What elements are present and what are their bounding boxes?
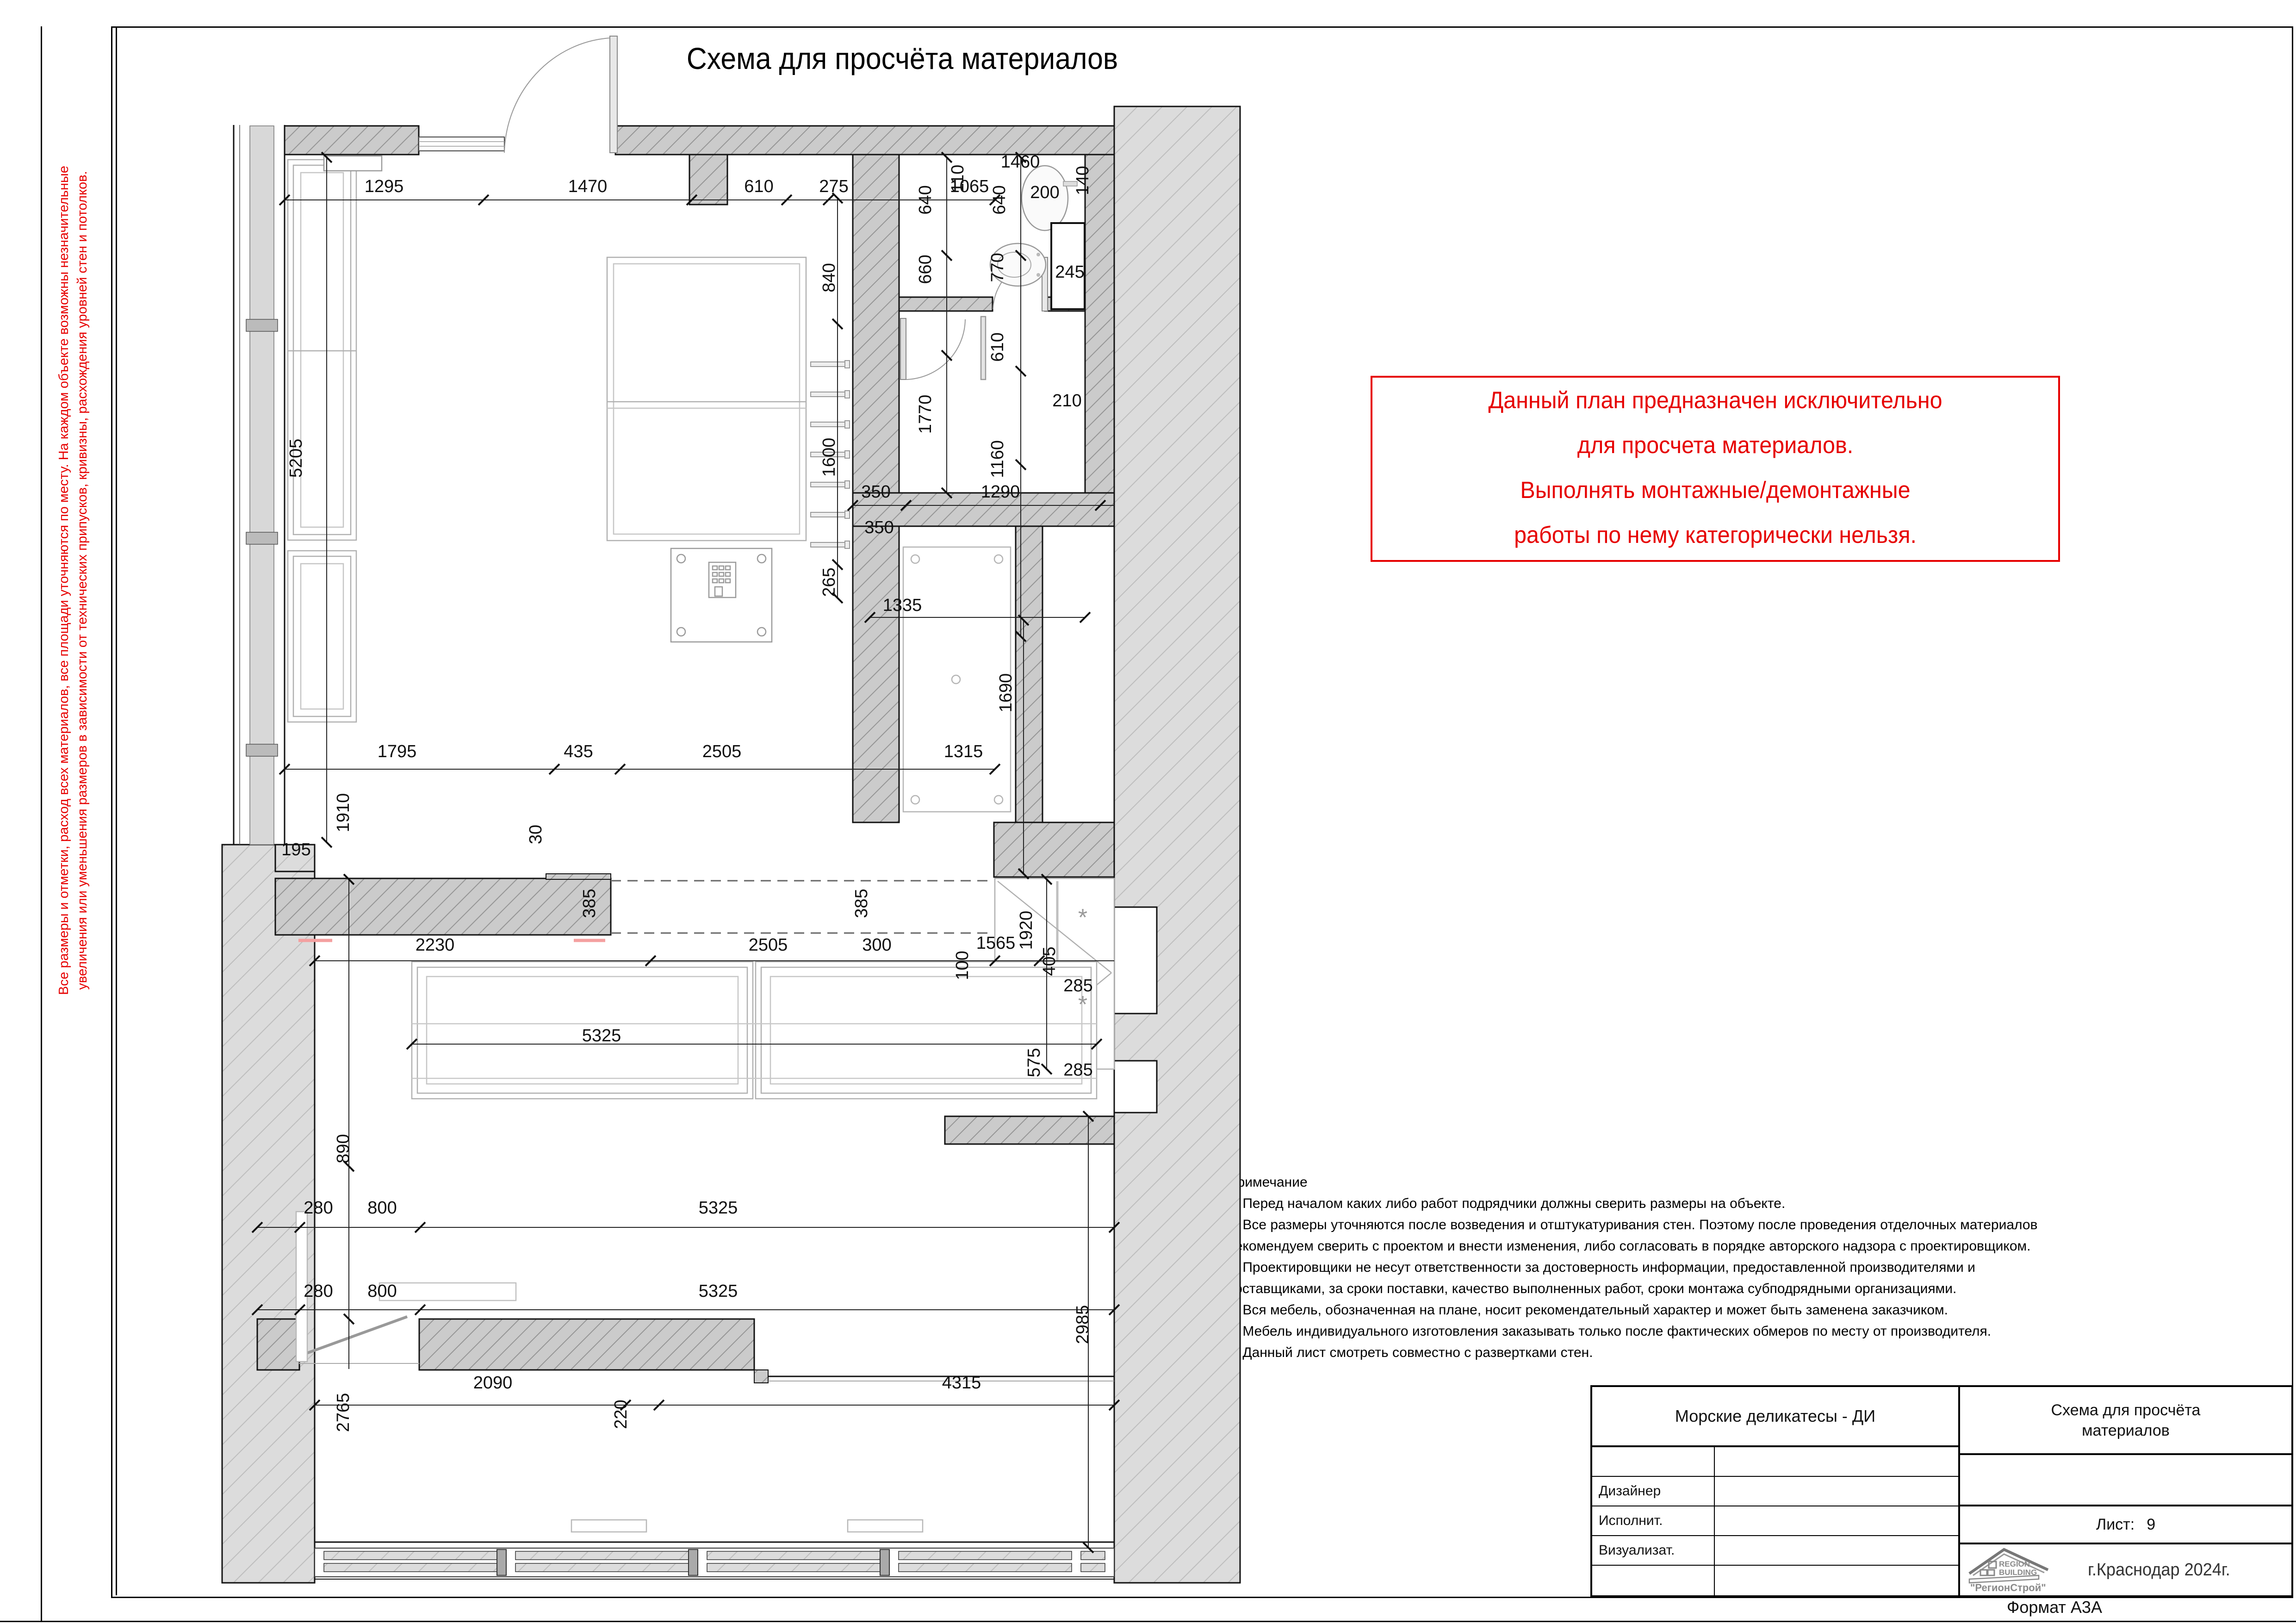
dim-label: 1770 [916,395,935,434]
dim-label: 1600 [819,438,839,477]
top-wall-left [285,126,419,155]
kitchen-counter [607,257,806,541]
title-block-logo-cell: REGION BUILDING "РегионСтрой" г.Краснода… [1960,1544,2291,1595]
dim-label: 5325 [699,1282,738,1301]
dim-label: 575 [1024,1048,1044,1077]
dim-label: 385 [580,889,599,918]
dim-label: 30 [526,825,546,844]
pantry-unit [903,547,1011,812]
wall-console [379,1283,516,1300]
dim-label: 2090 [473,1373,513,1393]
dim-label: 385 [852,889,871,918]
dim-label: 5325 [582,1026,621,1045]
pantry-left-wall [853,526,899,822]
hall-door-leaf [900,318,906,380]
right-wall-niche-upper [1114,907,1157,1014]
dim-label: 1160 [988,440,1007,478]
dim-label: 840 [819,263,839,292]
dim-label: 350 [861,482,890,502]
dim-label: 435 [564,742,593,761]
top-wall-right [615,126,1114,155]
dim-label: 4315 [942,1373,981,1393]
title-block-sheet-cell: Лист: 9 [1960,1506,2291,1544]
dim-label: 2505 [702,742,742,761]
mullion-joint [246,319,278,331]
role-visualizer-label: Визуализат. [1599,1543,1675,1558]
bathroom-left-wall [853,155,899,493]
left-glazing [234,125,285,845]
title-block-doc-title: Схема для просчёта материалов [1960,1387,2291,1455]
dim-label: 660 [916,255,935,284]
asterisk-symbol: * [1078,904,1087,931]
dim-label: 770 [988,253,1007,282]
pantry-right-wall [1016,526,1043,822]
lower-wall-step [754,1370,768,1383]
title-block-row-executor: Исполнит. [1592,1506,1960,1536]
dim-label: 1690 [996,673,1016,713]
dim-label: 195 [281,840,310,859]
title-block-row-visualizer: Визуализат. [1592,1536,1960,1566]
dim-label: 200 [1030,183,1059,202]
top-window-symbol [419,137,504,151]
dim-label: 5325 [699,1198,738,1218]
dim-label: 1290 [981,482,1020,502]
sheet-number: 9 [2147,1516,2155,1534]
dim-label: 350 [864,518,894,537]
lower-wall-main [419,1319,754,1370]
dim-label: 100 [953,951,972,980]
bottom-glazing [315,1542,1114,1579]
toilet-bolt [1036,273,1040,277]
dim-label: 2230 [416,935,455,955]
dim-label: 1910 [334,793,353,833]
hall-bottom-wall [945,1116,1114,1144]
dim-label: 110 [948,165,968,193]
floor-plan: 1295147061027510651401101460200640640660… [0,0,2296,1624]
middle-wall-left [275,878,611,935]
right-wall-niche-lower [1114,1061,1157,1113]
bathroom-right-wall [1085,155,1114,493]
bottom-radiator [848,1520,923,1532]
sheet-label: Лист: [2096,1516,2135,1534]
dim-label: 1565 [976,933,1016,953]
dim-label: 800 [367,1282,397,1301]
dim-label: 2765 [334,1393,353,1432]
dim-label: 5205 [286,439,306,478]
role-executor-label: Исполнит. [1599,1513,1663,1529]
island-appliance [671,548,772,642]
dim-label: 800 [367,1198,397,1218]
left-cabinet-upper [288,160,356,540]
dim-label: 1795 [378,742,417,761]
middle-wall-step-30 [546,874,611,879]
middle-wall-right [994,822,1114,877]
dim-label: 245 [1055,262,1084,282]
asterisk-symbol: * [1078,991,1087,1018]
dim-label: 1295 [365,177,404,196]
title-block-project: Морские деликатесы - ДИ [1592,1387,1960,1447]
dim-label: 890 [334,1134,353,1163]
right-structural-zone [1114,106,1240,1583]
dim-label: 610 [744,177,773,196]
entry-door-leaf [610,36,617,153]
dim-label: 285 [1063,1060,1092,1080]
entry-door-arc-icon [504,38,610,153]
role-designer-label: Дизайнер [1599,1483,1661,1499]
page-bottom-line [0,1621,2296,1622]
dim-label: 640 [916,185,935,214]
glazing-mullion-strip [250,126,274,845]
top-wall-shelf [324,156,382,171]
dim-label: 1920 [1017,911,1036,950]
dim-label: 610 [988,332,1007,361]
dim-label: 280 [304,1198,333,1218]
dim-label: 1335 [883,596,922,615]
title-block-row-designer: Дизайнер [1592,1477,1960,1506]
mullion-joint [246,744,278,756]
toilet-bolt [1036,253,1040,256]
dim-label: 300 [862,935,891,955]
dashed-corridor [611,881,994,933]
title-block-row-empty [1592,1566,1960,1595]
city-year-label: г.Краснодар 2024г. [2088,1560,2230,1580]
title-block: Морские деликатесы - ДИ Дизайнер Исполни… [1590,1385,2293,1597]
dim-label: 265 [819,567,839,597]
title-block-row-empty [1592,1447,1960,1477]
dim-label: 1460 [1001,152,1040,172]
dim-label: 640 [990,185,1009,214]
dim-label: 140 [1073,166,1092,195]
dim-label: 1470 [568,177,608,196]
left-cabinet-lower [288,551,356,722]
mullion-joint [246,532,278,544]
drawing-sheet: Схема для просчёта материалов Все размер… [0,0,2296,1624]
dim-label: 2985 [1073,1305,1092,1344]
lower-wall-stub [257,1319,299,1370]
bottom-radiator [571,1520,646,1532]
format-label: Формат А3А [1934,1598,2175,1617]
svg-text:REGION: REGION [1999,1560,2030,1568]
dim-label: 2505 [749,935,788,955]
hall-door-arc-icon [906,319,965,380]
dim-label: 275 [819,177,848,196]
dim-label: 220 [611,1400,631,1429]
dim-label: 1315 [944,742,983,761]
dim-label: 210 [1052,391,1081,411]
title-block-empty-cell [1960,1455,2291,1506]
dim-label: 280 [304,1282,333,1301]
dim-label: 405 [1040,946,1059,976]
hall-cabinet [981,317,986,380]
svg-text:"РегионСтрой": "РегионСтрой" [1970,1582,2046,1593]
company-logo-icon: REGION BUILDING "РегионСтрой" [1960,1546,2076,1594]
wc-partition-left [899,297,993,311]
